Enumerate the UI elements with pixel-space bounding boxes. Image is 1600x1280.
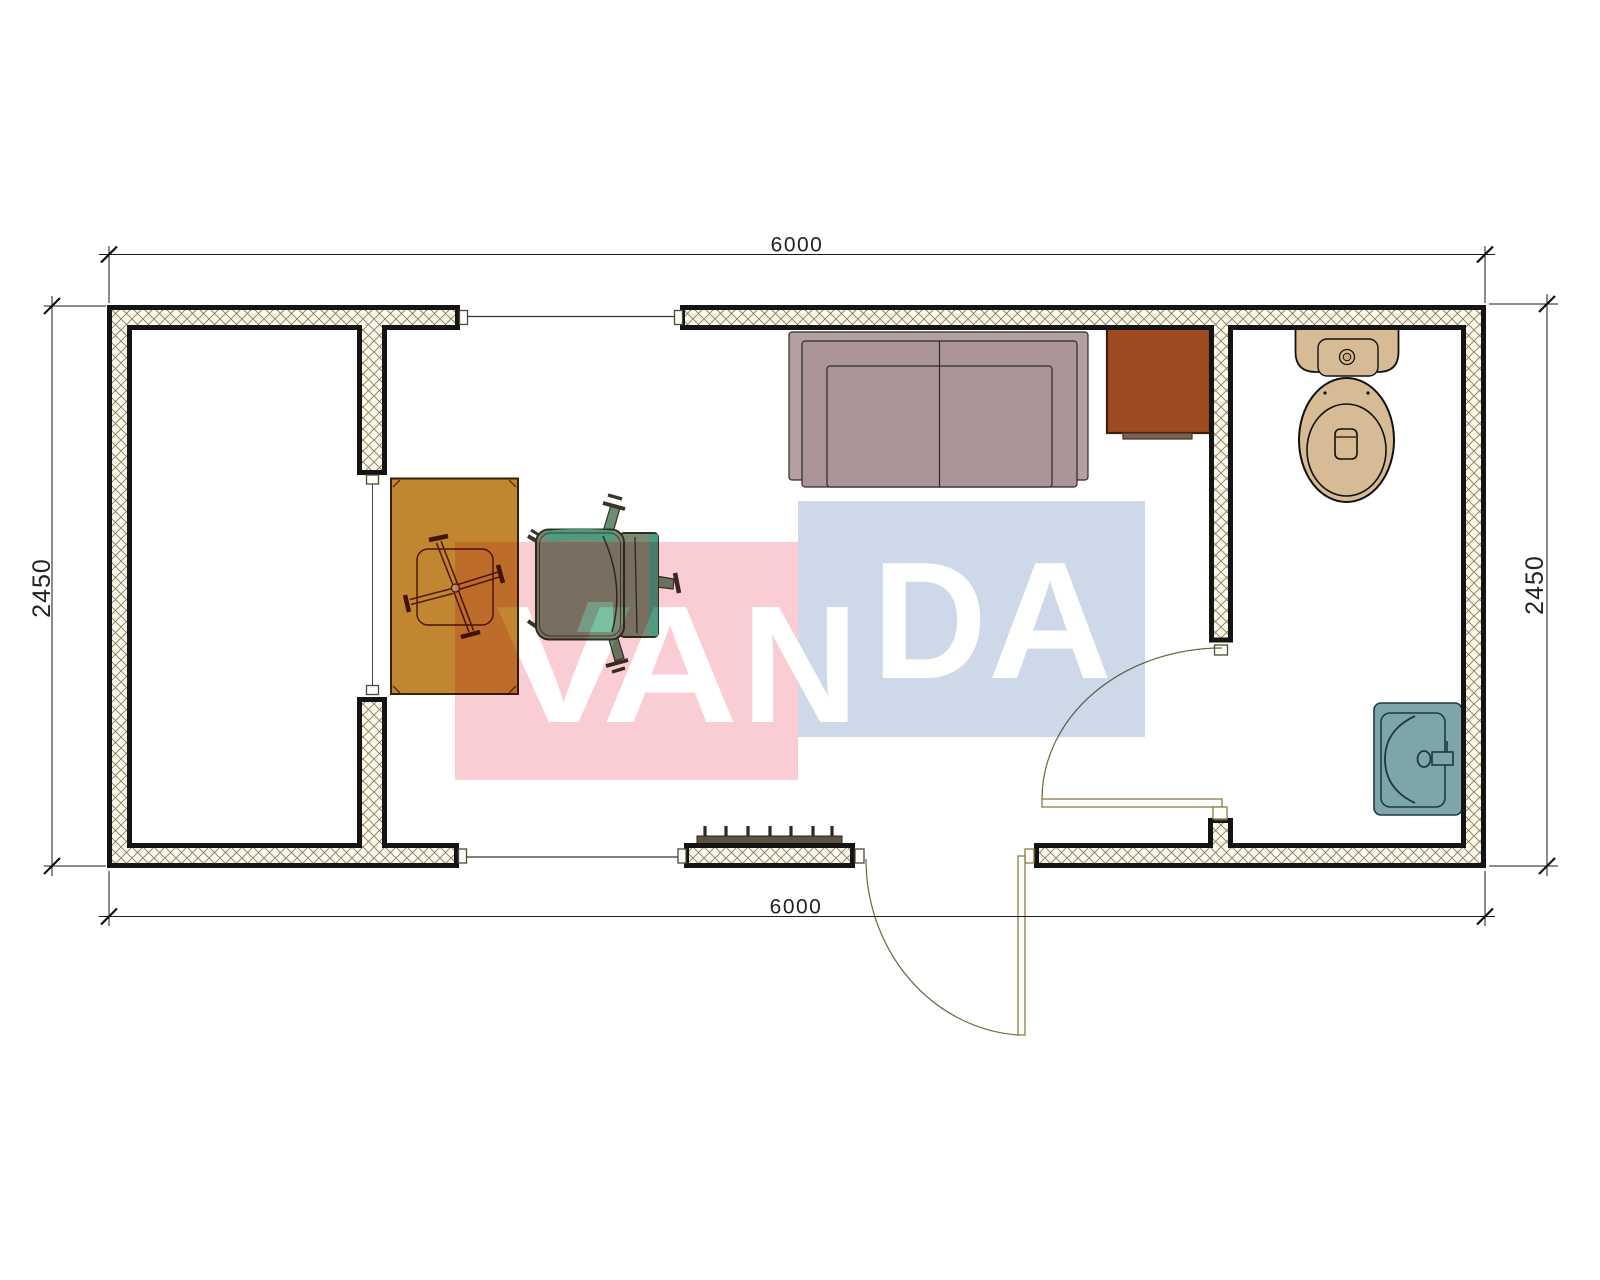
svg-text:6000: 6000	[770, 896, 823, 919]
svg-text:2450: 2450	[28, 558, 56, 618]
svg-text:2450: 2450	[1521, 555, 1549, 615]
svg-text:A: A	[602, 571, 738, 758]
svg-text:A: A	[988, 527, 1112, 713]
svg-text:D: D	[872, 527, 987, 714]
svg-text:N: N	[742, 571, 859, 758]
svg-text:6000: 6000	[771, 234, 824, 257]
